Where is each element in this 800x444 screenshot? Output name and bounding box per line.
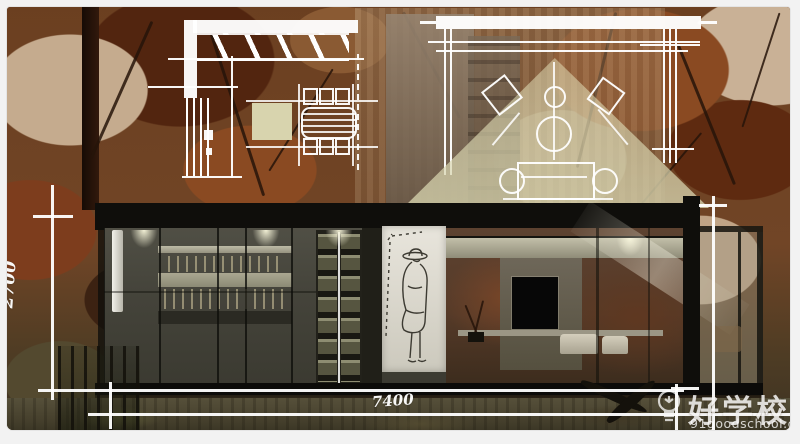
plan-header-bar bbox=[436, 16, 701, 29]
drawing-line bbox=[675, 29, 677, 163]
dimension-label-height: 2700 bbox=[7, 285, 73, 312]
glass-wing bbox=[700, 232, 763, 385]
drawing-line bbox=[168, 58, 364, 60]
glass-wing-roofline bbox=[700, 226, 763, 232]
watermark-url: 91goodschool.com bbox=[690, 416, 790, 430]
drawing-line bbox=[148, 86, 238, 88]
drawing-line bbox=[231, 56, 233, 178]
figure-sketch bbox=[382, 226, 446, 372]
glass-mullion bbox=[648, 228, 650, 385]
dashed-reference-line bbox=[357, 54, 359, 170]
drawing-line bbox=[503, 198, 613, 200]
dining-table-plan bbox=[301, 107, 357, 139]
drawing-line bbox=[669, 29, 671, 163]
drawing-line bbox=[521, 176, 587, 178]
glass-mullion bbox=[596, 228, 599, 385]
dimension-tick bbox=[33, 215, 73, 218]
drawing-line bbox=[652, 148, 694, 150]
chair-plan bbox=[319, 138, 334, 155]
chair-plan bbox=[303, 138, 318, 155]
sofa bbox=[560, 334, 598, 354]
plan-circle bbox=[499, 168, 525, 194]
dark-divider-wall bbox=[362, 228, 382, 385]
chair-plan bbox=[319, 88, 334, 105]
tree-trunk bbox=[82, 7, 99, 210]
ceiling-light bbox=[248, 230, 284, 258]
width-dimension-line bbox=[38, 389, 684, 392]
glass-wing-edge bbox=[757, 232, 763, 385]
drawing-line bbox=[420, 21, 436, 24]
lightbulb-icon bbox=[650, 386, 688, 428]
glass-wing-furniture bbox=[712, 326, 742, 352]
plant-pot bbox=[468, 332, 484, 342]
table-plan bbox=[517, 162, 595, 200]
drawing-line bbox=[701, 21, 717, 24]
cabinet-base bbox=[158, 311, 292, 324]
ceiling-light bbox=[321, 230, 357, 256]
hanging-items bbox=[168, 256, 282, 272]
plan-circle bbox=[544, 86, 566, 108]
shelf-compartments bbox=[341, 234, 360, 382]
wall-seam bbox=[159, 228, 161, 385]
chair-plan bbox=[335, 88, 350, 105]
ceiling-light bbox=[126, 230, 162, 258]
drawing-line bbox=[663, 29, 665, 163]
white-pilaster bbox=[112, 230, 123, 312]
tv-screen bbox=[512, 277, 558, 329]
drawing-line bbox=[444, 29, 446, 175]
dimension-tick bbox=[109, 382, 112, 429]
drawing-line bbox=[428, 41, 700, 43]
drawing-line bbox=[640, 44, 700, 46]
chair-plan bbox=[335, 138, 350, 155]
stair-hatch-drawing bbox=[197, 33, 349, 61]
figure-sketch-panel bbox=[382, 226, 446, 372]
upper-shelf bbox=[158, 246, 292, 253]
chair-plan bbox=[303, 88, 318, 105]
black-column bbox=[683, 196, 700, 388]
wall-seam bbox=[217, 228, 219, 385]
drawing-line bbox=[298, 84, 300, 166]
drawing-mark bbox=[206, 148, 212, 155]
plan-header-bar bbox=[193, 20, 358, 33]
wall-seam bbox=[245, 228, 247, 385]
plan-circle bbox=[536, 116, 572, 152]
shelf-compartments bbox=[318, 234, 337, 382]
rendering-image: 2700 7400 好学校 91goodschool.com bbox=[7, 7, 790, 430]
wall-seam bbox=[291, 228, 293, 385]
counter-slab bbox=[158, 273, 292, 287]
glass-mullion bbox=[738, 232, 741, 385]
drawing-line bbox=[450, 29, 452, 175]
cream-plan-block bbox=[252, 103, 292, 140]
fence bbox=[58, 346, 140, 430]
stage: 2700 7400 好学校 91goodschool.com bbox=[7, 7, 790, 430]
drawing-mark bbox=[204, 130, 213, 140]
drawing-line bbox=[182, 176, 242, 178]
sofa bbox=[602, 336, 628, 354]
dimension-label-width: 7400 bbox=[371, 389, 432, 413]
drawing-line bbox=[436, 50, 688, 52]
plan-circle bbox=[592, 168, 618, 194]
dimension-tick bbox=[699, 204, 727, 207]
